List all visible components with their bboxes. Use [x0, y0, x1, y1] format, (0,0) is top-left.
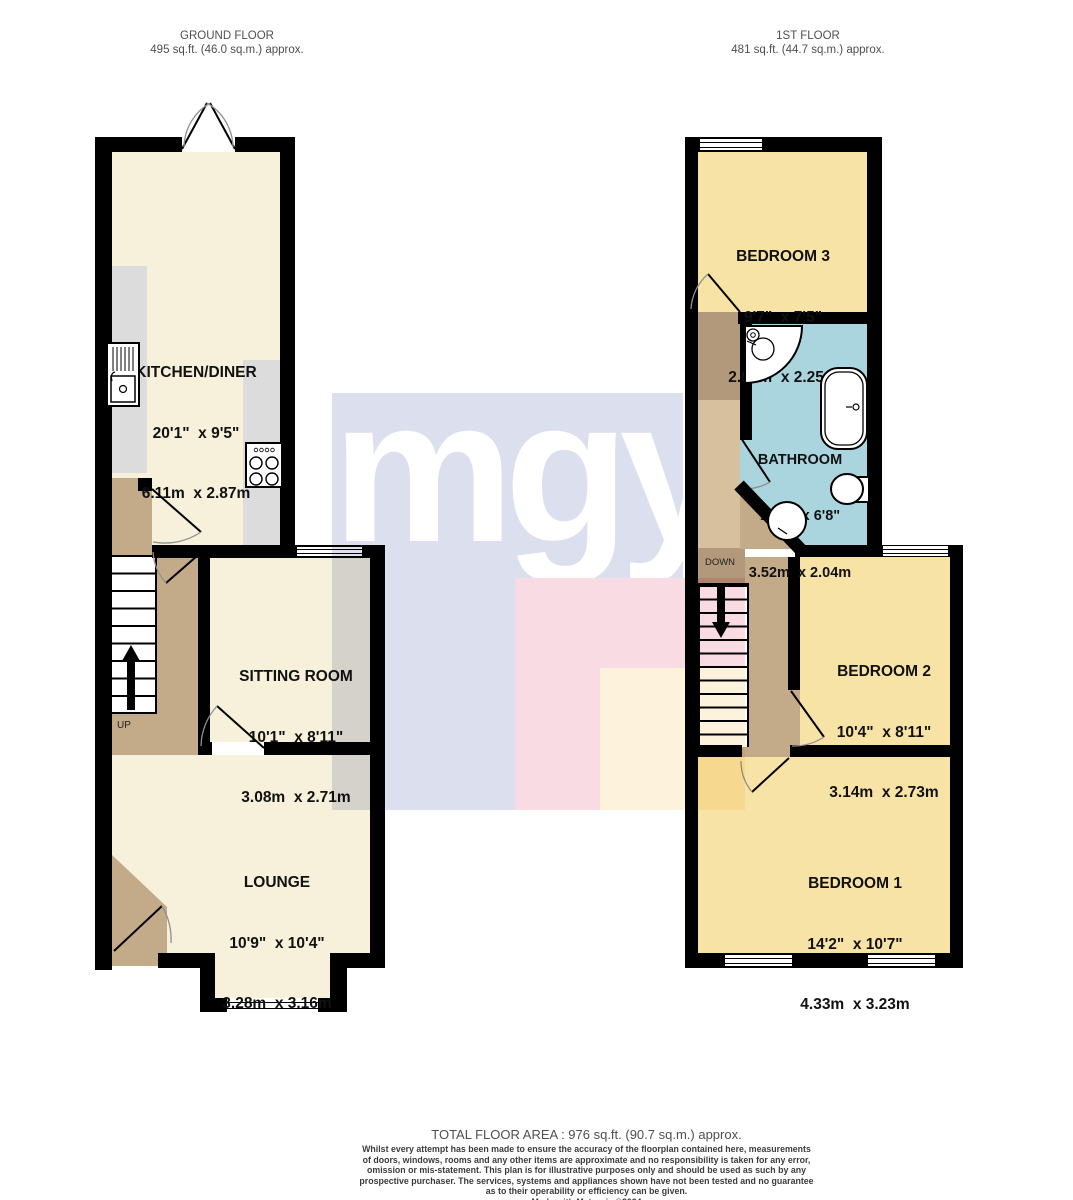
disclaimer: Whilst every attempt has been made to en… [250, 1144, 923, 1200]
disclaimer-line: as to their operability or efficiency ca… [250, 1186, 923, 1197]
disclaimer-line: of doors, windows, rooms and any other i… [250, 1155, 923, 1166]
disclaimer-line: Whilst every attempt has been made to en… [250, 1144, 923, 1155]
disclaimer-line: prospective purchaser. The services, sys… [250, 1176, 923, 1187]
floorplan-canvas: GROUND FLOOR 495 sq.ft. (46.0 sq.m.) app… [0, 0, 1073, 1200]
cooker [246, 443, 282, 487]
door-swings-and-fixtures [0, 0, 1073, 1200]
total-floor-area: TOTAL FLOOR AREA : 976 sq.ft. (90.7 sq.m… [250, 1127, 923, 1142]
door-swing-arcs [153, 103, 824, 943]
door-leaves [114, 103, 824, 951]
toilet [831, 474, 869, 504]
pedestal-basin [768, 502, 806, 540]
kitchen-sink [107, 343, 139, 406]
bathtub [821, 368, 867, 449]
corner-basin [745, 326, 802, 383]
disclaimer-line: omission or mis-statement. This plan is … [250, 1165, 923, 1176]
